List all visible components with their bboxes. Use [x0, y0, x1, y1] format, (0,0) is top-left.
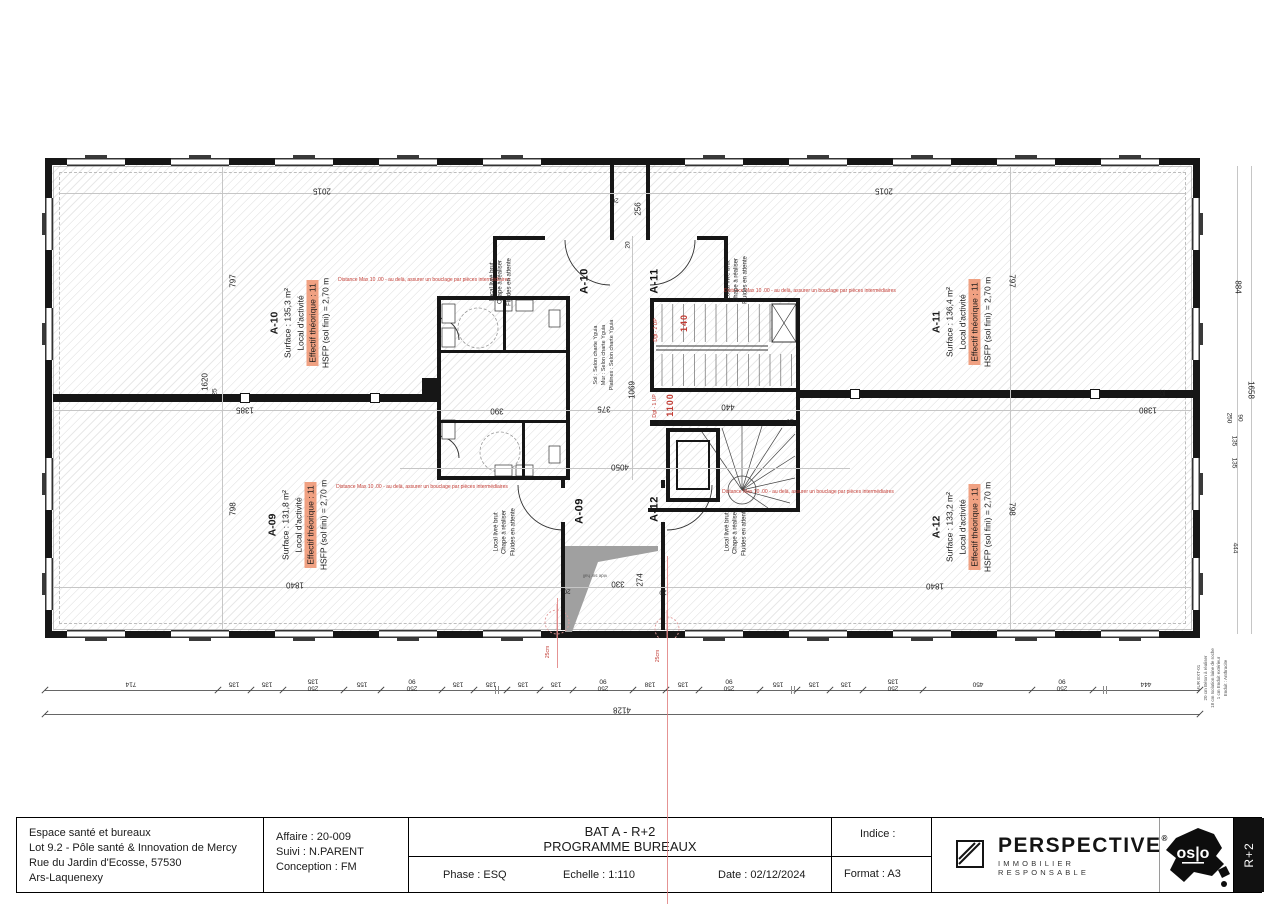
window [1101, 630, 1159, 638]
room-surface: Surface : 133,2 m² [944, 442, 957, 612]
room-surface: Surface : 136,4 m² [944, 237, 957, 407]
sheet-title-line1: BAT A - R+2 [409, 824, 831, 839]
dimension-label: 20 [563, 587, 570, 594]
chain-dimension: 250 90 [597, 677, 608, 692]
window-sill [1200, 213, 1203, 235]
sheet-title-cell: BAT A - R+2 PROGRAMME BUREAUX Phase : ES… [408, 818, 831, 892]
chain-dimension: 135 [677, 680, 688, 687]
dimension-label: 274 [635, 573, 644, 586]
level-tag: R+2 [1242, 842, 1256, 867]
dimension-label: 25 [1158, 389, 1165, 396]
dimension-label: 135 [1230, 458, 1237, 469]
window [45, 458, 53, 510]
chain-dimension: 135 [485, 680, 496, 687]
interior-wall [646, 165, 650, 240]
stair-note: Dgt - 1 UP [653, 394, 659, 417]
room-delivery-note: Local livré brut Chape à réaliser Fluide… [724, 256, 749, 304]
chain-dimension: 155 [357, 680, 368, 687]
column [850, 389, 860, 399]
echelle-label: Echelle : 1:110 [563, 869, 635, 881]
dimension-label: 4050 [611, 462, 629, 471]
effectif-highlight: Effectif théorique : 11 [969, 484, 981, 570]
distance-annotation: Distance Max 10 .00 - au delà, assurer u… [338, 278, 510, 284]
dimension-tick [1196, 710, 1203, 717]
room-hsfp: HSFP (sol fini) = 2,70 m [319, 238, 332, 408]
room-delivery-note: Local livré brut Chape à réaliser Fluide… [492, 508, 517, 556]
dimension-label: 440 [721, 402, 734, 411]
dimension-label: 1620 [200, 373, 209, 391]
chain-break-mark [791, 686, 792, 694]
window [483, 158, 541, 166]
chain-dimension: 250 90 [724, 677, 735, 692]
chain-dimension: 714 [126, 680, 137, 687]
window-sill [85, 638, 107, 641]
chain-dimension: 135 [261, 680, 272, 687]
column [370, 393, 380, 403]
room-label-a-12: A-12Surface : 133,2 m²Local d'activitéEf… [931, 442, 994, 612]
dimension-label: 20 [611, 196, 618, 203]
window [789, 158, 847, 166]
window [685, 158, 743, 166]
window [45, 308, 53, 360]
window-sill [397, 638, 419, 641]
room-effectif: Effectif théorique : 11 [969, 237, 982, 407]
format-label: Format : A3 [844, 868, 901, 880]
dimension-label: 2015 [313, 186, 331, 195]
window [379, 630, 437, 638]
window [1192, 198, 1200, 250]
room-hsfp: HSFP (sol fini) = 2,70 m [981, 237, 994, 407]
reference-line [60, 193, 1185, 194]
reference-line [222, 166, 223, 630]
window [45, 198, 53, 250]
detail-note: 25cm [656, 650, 662, 662]
effectif-highlight: Effectif théorique : 11 [307, 280, 319, 366]
door-label: A-12 [649, 496, 662, 522]
dimension-label: 1380 [1139, 405, 1157, 414]
date-label: Date : 02/12/2024 [718, 869, 805, 881]
dimension-label: 798 [1007, 502, 1016, 515]
core-wall-box [650, 298, 800, 392]
title-block: Espace santé et bureaux Lot 9.2 - Pôle s… [16, 817, 1262, 893]
dimension-label: 375 [597, 404, 610, 413]
chain-dimension: 250 90 [1057, 677, 1068, 692]
window [275, 630, 333, 638]
dimension-label: 25 [211, 388, 218, 395]
hall-finish-note: Sol : Selon charte Yguia Mur : Selon cha… [593, 320, 617, 391]
interior-wall [697, 236, 726, 240]
interior-wall [661, 522, 665, 630]
interior-wall [561, 480, 565, 488]
sheet-meta-row: Phase : ESQ Echelle : 1:110 Date : 02/12… [409, 856, 831, 892]
chain-dimension: 138 [644, 680, 655, 687]
dimension-label: 2015 [875, 186, 893, 195]
dimension-label: 798 [228, 502, 237, 515]
dimension-label: 884 [1233, 280, 1242, 293]
stair-note: Dgt - 2 UP [654, 318, 660, 341]
window [1192, 308, 1200, 360]
dimension-label: 20 [659, 588, 666, 595]
distance-annotation: Distance Max 10 .00 - au delà, assurer u… [336, 485, 508, 491]
interior-wall [561, 522, 565, 630]
chain-break-mark [794, 686, 795, 694]
room-effectif: Effectif théorique : 11 [307, 238, 320, 408]
door-label: A-09 [574, 498, 587, 524]
room-delivery-note: Local livré brut Chape à réaliser Fluide… [488, 258, 513, 306]
affaire-info: Affaire : 20-009 Suivi : N.PARENT Concep… [263, 818, 408, 892]
affaire-line: Conception : FM [276, 860, 408, 875]
project-line: Rue du Jardin d'Ecosse, 57530 [29, 856, 263, 871]
room-label-a-09: A-09Surface : 131,8 m²Local d'activitéEf… [267, 440, 330, 610]
window [1101, 158, 1159, 166]
room-surface: Surface : 131,8 m² [280, 440, 293, 610]
project-info: Espace santé et bureaux Lot 9.2 - Pôle s… [17, 818, 263, 892]
chain-dimension: 135 [453, 680, 464, 687]
oslo-logo-icon: os|o [1160, 818, 1232, 892]
dimension-label: 20 [658, 418, 665, 425]
interior-wall [422, 378, 437, 402]
window [379, 158, 437, 166]
room-id: A-10 [269, 238, 282, 408]
room-hsfp: HSFP (sol fini) = 2,70 m [981, 442, 994, 612]
room-effectif: Effectif théorique : 11 [969, 442, 982, 612]
window-sill [1200, 473, 1203, 495]
dimension-label: 390 [490, 406, 503, 415]
room-type: Local d'activité [956, 237, 969, 407]
chain-dimension: 135 [229, 680, 240, 687]
perspective-logo-cell: PERSPECTIVE® IMMOBILIER RESPONSABLE [931, 818, 1159, 892]
chain-dimension: 155 [773, 680, 784, 687]
perspective-name: PERSPECTIVE [998, 834, 1162, 857]
chain-dimension: 450 [972, 680, 983, 687]
window-sill [501, 638, 523, 641]
chain-dimension: 135 [518, 680, 529, 687]
chain-break-mark [1106, 686, 1107, 694]
phase-label: Phase : ESQ [443, 869, 507, 881]
dimension-label: 1385 [236, 405, 254, 414]
project-line: Lot 9.2 - Pôle santé & Innovation de Mer… [29, 841, 263, 856]
perspective-tagline: IMMOBILIER RESPONSABLE [998, 859, 1169, 877]
room-id: A-11 [931, 237, 944, 407]
core-wall-box [676, 440, 710, 490]
window-sill [189, 638, 211, 641]
window [483, 630, 541, 638]
dimension-label: 256 [633, 202, 642, 215]
reference-line [632, 236, 633, 480]
stair-dim-red: 1100 [665, 393, 675, 417]
interior-wall [497, 236, 545, 240]
room-delivery-note: Local livré brut Chape à réaliser Fluide… [723, 508, 748, 556]
room-type: Local d'activité [292, 440, 305, 610]
indice-cell: Indice : Format : A3 [831, 818, 931, 892]
divider [832, 856, 931, 857]
room-id: A-12 [931, 442, 944, 612]
distance-annotation: Distance Max 10 .00 - au delà, assurer u… [722, 490, 894, 496]
room-effectif: Effectif théorique : 11 [305, 440, 318, 610]
sheet-title-line2: PROGRAMME BUREAUX [409, 839, 831, 854]
effectif-highlight: Effectif théorique : 11 [305, 482, 317, 568]
dimension-label: 797 [228, 274, 237, 287]
project-line: Ars-Laquenexy [29, 871, 263, 886]
chain-dimension: 250 135 [308, 677, 319, 692]
room-hsfp: HSFP (sol fini) = 2,70 m [317, 440, 330, 610]
chain-dimension: 135 [841, 680, 852, 687]
window-sill [807, 638, 829, 641]
oslo-logo-cell: os|o [1159, 818, 1233, 892]
room-id: A-09 [267, 440, 280, 610]
window [789, 630, 847, 638]
interior-wall [650, 420, 800, 426]
interior-wall [661, 480, 665, 488]
core-wall-box [437, 296, 570, 480]
door-label: A-10 [579, 268, 592, 294]
affaire-line: Suivi : N.PARENT [276, 845, 408, 860]
affaire-line: Affaire : 20-009 [276, 830, 408, 845]
window [67, 158, 125, 166]
section-line [557, 598, 558, 668]
distance-annotation: Distance Max 10 .00 - au delà, assurer u… [724, 289, 896, 295]
dimension-label: 1069 [627, 381, 636, 399]
window [67, 630, 125, 638]
reference-line [53, 410, 1192, 411]
perspective-logo-text: PERSPECTIVE® IMMOBILIER RESPONSABLE [998, 834, 1169, 877]
chain-dimension: 250 90 [406, 677, 417, 692]
window-sill [1119, 638, 1141, 641]
window [893, 158, 951, 166]
stair-dim-red: 140 [679, 314, 689, 332]
window-sill [1200, 323, 1203, 345]
window [171, 158, 229, 166]
window-sill [911, 638, 933, 641]
drawing-sheet: Espace santé et bureaux Lot 9.2 - Pôle s… [0, 0, 1280, 904]
chain-break-mark [498, 686, 499, 694]
dimension-label: 135 [1230, 436, 1237, 447]
window [997, 158, 1055, 166]
dimension-label: 330 [611, 579, 624, 588]
window [171, 630, 229, 638]
level-tab: R+2 [1233, 818, 1264, 892]
room-label-a-10: A-10Surface : 135,3 m²Local d'activitéEf… [269, 238, 332, 408]
project-line: Espace santé et bureaux [29, 826, 263, 841]
room-type: Local d'activité [294, 238, 307, 408]
chain-dimension: 444 [1141, 680, 1152, 687]
chain-break-mark [1103, 686, 1104, 694]
room-type: Local d'activité [956, 442, 969, 612]
dimension-label: 250 [1225, 413, 1232, 424]
window [997, 630, 1055, 638]
detail-note: 25cm [546, 646, 552, 658]
window-sill [1015, 638, 1037, 641]
dimension-label: 1658 [1246, 381, 1255, 399]
room-surface: Surface : 135,3 m² [282, 238, 295, 408]
dimension-label: 797 [1007, 274, 1016, 287]
window-sill [1200, 573, 1203, 595]
window [45, 558, 53, 610]
window [685, 630, 743, 638]
window [1192, 558, 1200, 610]
chain-dimension: 135 [808, 680, 819, 687]
column [240, 393, 250, 403]
dimension-label: 444 [1231, 543, 1238, 554]
dimension-label: 20 [624, 241, 631, 248]
reference-line [1237, 166, 1238, 634]
oslo-logo-text: os|o [1177, 845, 1210, 862]
door-label: A-11 [649, 268, 662, 293]
void-label: vide sur hall [583, 572, 607, 579]
chain-dimension: 250 135 [887, 677, 898, 692]
reference-line [1010, 166, 1011, 630]
room-label-a-11: A-11Surface : 136,4 m²Local d'activitéEf… [931, 237, 994, 407]
window [275, 158, 333, 166]
wall-type-note: MUR EXT-01 20 cm Béton à réaliser 18 cm … [1196, 648, 1230, 708]
dimension-label: 90 [1236, 414, 1243, 421]
sheet-title: BAT A - R+2 PROGRAMME BUREAUX [409, 824, 831, 854]
window-sill [703, 638, 725, 641]
total-dimension: 4128 [613, 705, 631, 714]
dimension-label: 20 [786, 417, 793, 424]
window-sill [293, 638, 315, 641]
reference-line [1251, 166, 1252, 634]
window [1192, 458, 1200, 510]
effectif-highlight: Effectif théorique : 11 [969, 279, 981, 365]
chain-dimension: 135 [551, 680, 562, 687]
section-line [667, 556, 668, 904]
perspective-logo-icon [956, 840, 984, 868]
column [1090, 389, 1100, 399]
indice-label: Indice : [860, 828, 895, 840]
window [893, 630, 951, 638]
